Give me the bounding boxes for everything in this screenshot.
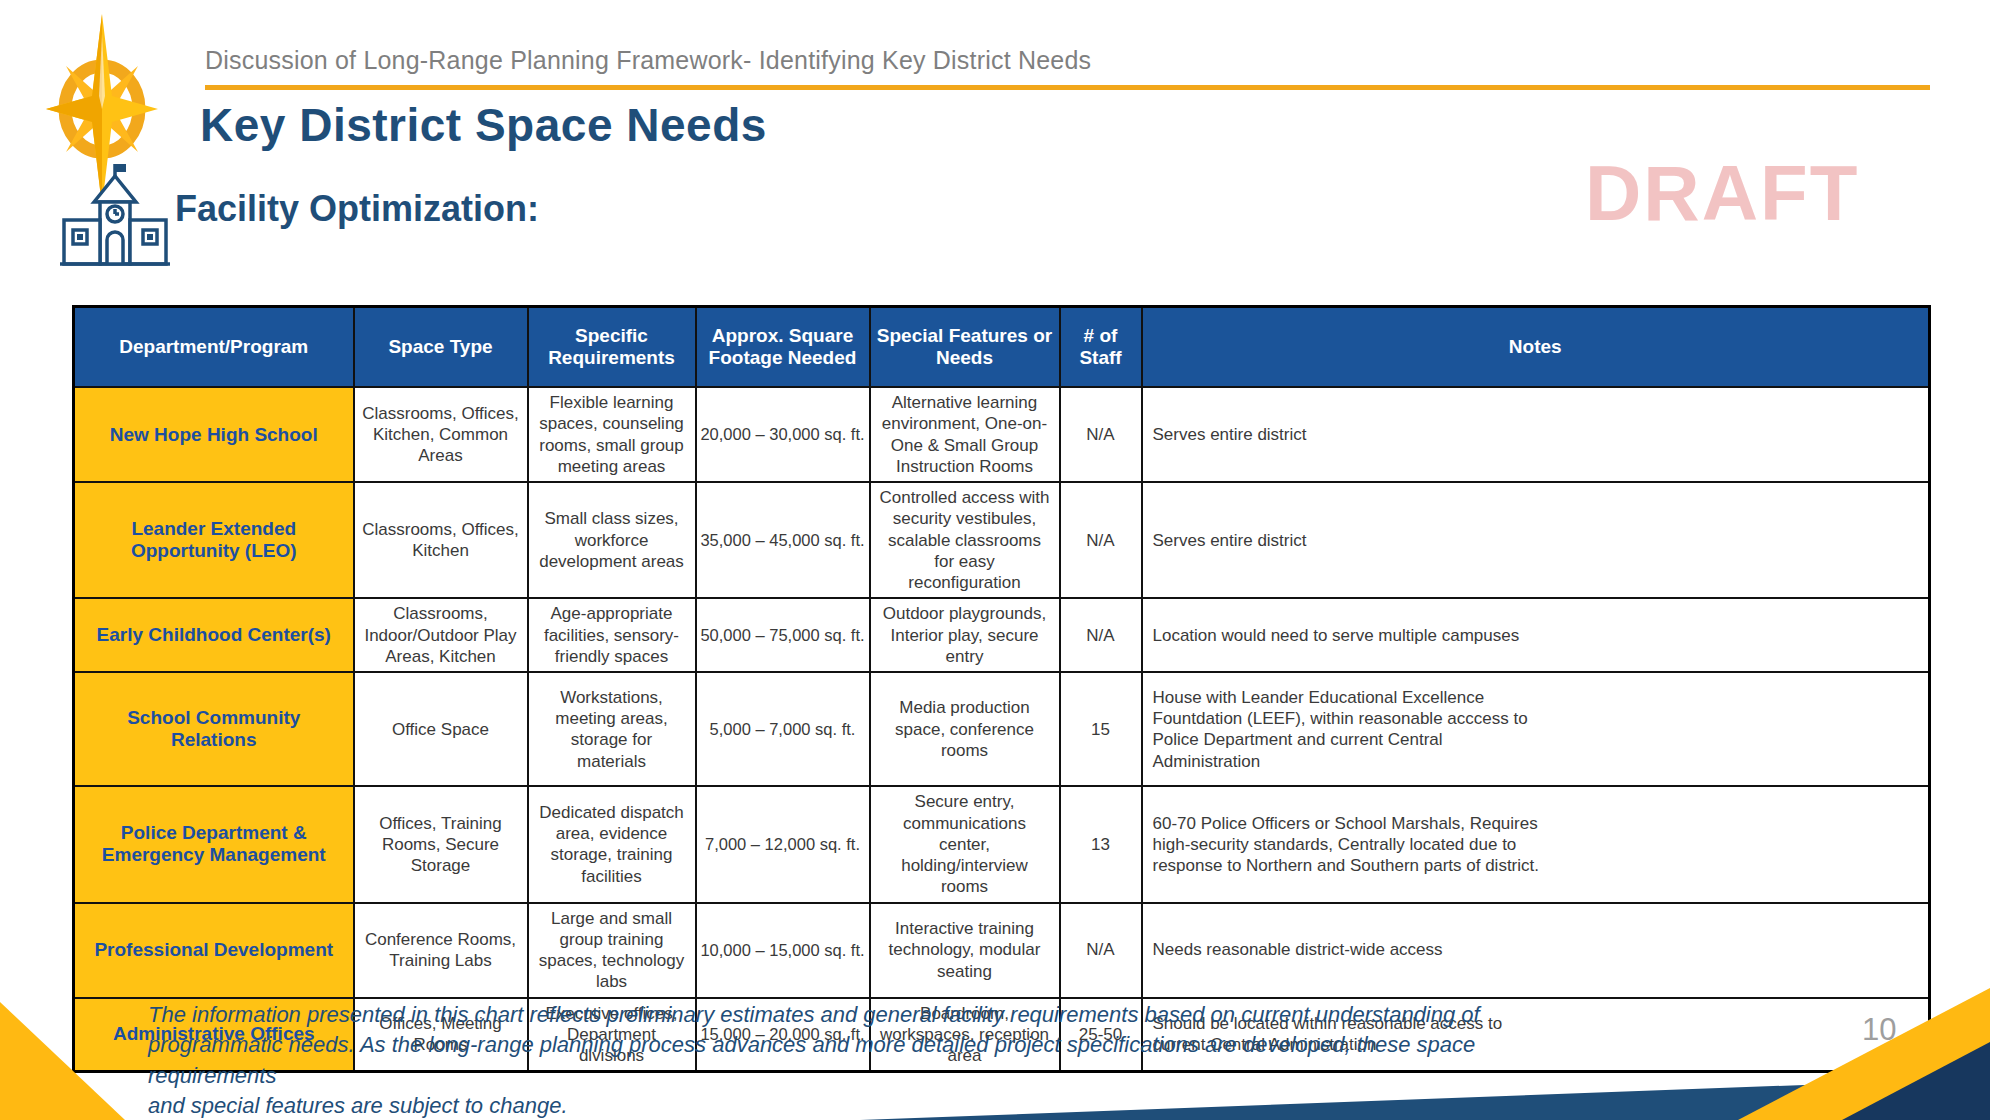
cell-specific-requirements: Large and small group training spaces, t… [528,903,696,998]
cell-notes: Needs reasonable district-wide access [1142,903,1930,998]
cell-staff: 15 [1060,672,1142,786]
cell-special-features: Alternative learning environment, One-on… [870,387,1060,482]
cell-department: Leander Extended Opportunity (LEO) [74,482,354,598]
column-header-notes: Notes [1142,307,1930,388]
cell-specific-requirements: Dedicated dispatch area, evidence storag… [528,786,696,902]
cell-square-footage: 5,000 – 7,000 sq. ft. [696,672,870,786]
cell-staff: 13 [1060,786,1142,902]
cell-department: School Community Relations [74,672,354,786]
cell-special-features: Outdoor playgrounds, Interior play, secu… [870,598,1060,672]
cell-space-type: Conference Rooms, Training Labs [354,903,528,998]
space-needs-table: Department/Program Space Type Specific R… [72,305,1931,1073]
cell-specific-requirements: Flexible learning spaces, counseling roo… [528,387,696,482]
slide: Discussion of Long-Range Planning Framew… [0,0,1990,1120]
cell-special-features: Controlled access with security vestibul… [870,482,1060,598]
cell-notes: Location would need to serve multiple ca… [1142,598,1930,672]
column-header-department: Department/Program [74,307,354,388]
column-header-staff: # of Staff [1060,307,1142,388]
cell-staff: N/A [1060,482,1142,598]
cell-space-type: Office Space [354,672,528,786]
column-header-special-features: Special Features or Needs [870,307,1060,388]
schoolhouse-icon [56,162,174,292]
cell-staff: N/A [1060,903,1142,998]
cell-department: Police Department & Emergency Management [74,786,354,902]
table-header-row: Department/Program Space Type Specific R… [74,307,1930,388]
cell-space-type: Offices, Training Rooms, Secure Storage [354,786,528,902]
cell-specific-requirements: Small class sizes, workforce development… [528,482,696,598]
cell-special-features: Media production space, conference rooms [870,672,1060,786]
table-row: New Hope High School Classrooms, Offices… [74,387,1930,482]
cell-specific-requirements: Age-appropriate facilities, sensory-frie… [528,598,696,672]
cell-department: Professional Development [74,903,354,998]
column-header-specific-requirements: Specific Requirements [528,307,696,388]
cell-special-features: Secure entry, communications center, hol… [870,786,1060,902]
disclaimer-text: The information presented in this chart … [148,1000,1488,1120]
draft-watermark: DRAFT [1585,148,1859,239]
column-header-space-type: Space Type [354,307,528,388]
table-row: Leander Extended Opportunity (LEO) Class… [74,482,1930,598]
cell-square-footage: 50,000 – 75,000 sq. ft. [696,598,870,672]
section-heading: Facility Optimization: [175,188,539,230]
cell-space-type: Classrooms, Offices, Kitchen, Common Are… [354,387,528,482]
cell-square-footage: 35,000 – 45,000 sq. ft. [696,482,870,598]
breadcrumb: Discussion of Long-Range Planning Framew… [205,46,1091,75]
cell-department: Early Childhood Center(s) [74,598,354,672]
table-row: Police Department & Emergency Management… [74,786,1930,902]
cell-notes: 60-70 Police Officers or School Marshals… [1142,786,1930,902]
cell-square-footage: 10,000 – 15,000 sq. ft. [696,903,870,998]
cell-notes: Serves entire district [1142,387,1930,482]
cell-space-type: Classrooms, Offices, Kitchen [354,482,528,598]
cell-square-footage: 20,000 – 30,000 sq. ft. [696,387,870,482]
column-header-square-footage: Approx. Square Footage Needed [696,307,870,388]
cell-specific-requirements: Workstations, meeting areas, storage for… [528,672,696,786]
cell-staff: N/A [1060,387,1142,482]
cell-notes: House with Leander Educational Excellenc… [1142,672,1930,786]
page-title: Key District Space Needs [200,98,767,152]
table-row: Early Childhood Center(s) Classrooms, In… [74,598,1930,672]
cell-notes: Serves entire district [1142,482,1930,598]
table-row: Professional Development Conference Room… [74,903,1930,998]
cell-special-features: Interactive training technology, modular… [870,903,1060,998]
cell-space-type: Classrooms, Indoor/Outdoor Play Areas, K… [354,598,528,672]
cell-staff: N/A [1060,598,1142,672]
cell-department: New Hope High School [74,387,354,482]
gold-divider-line [205,85,1930,90]
table-row: School Community Relations Office Space … [74,672,1930,786]
cell-square-footage: 7,000 – 12,000 sq. ft. [696,786,870,902]
